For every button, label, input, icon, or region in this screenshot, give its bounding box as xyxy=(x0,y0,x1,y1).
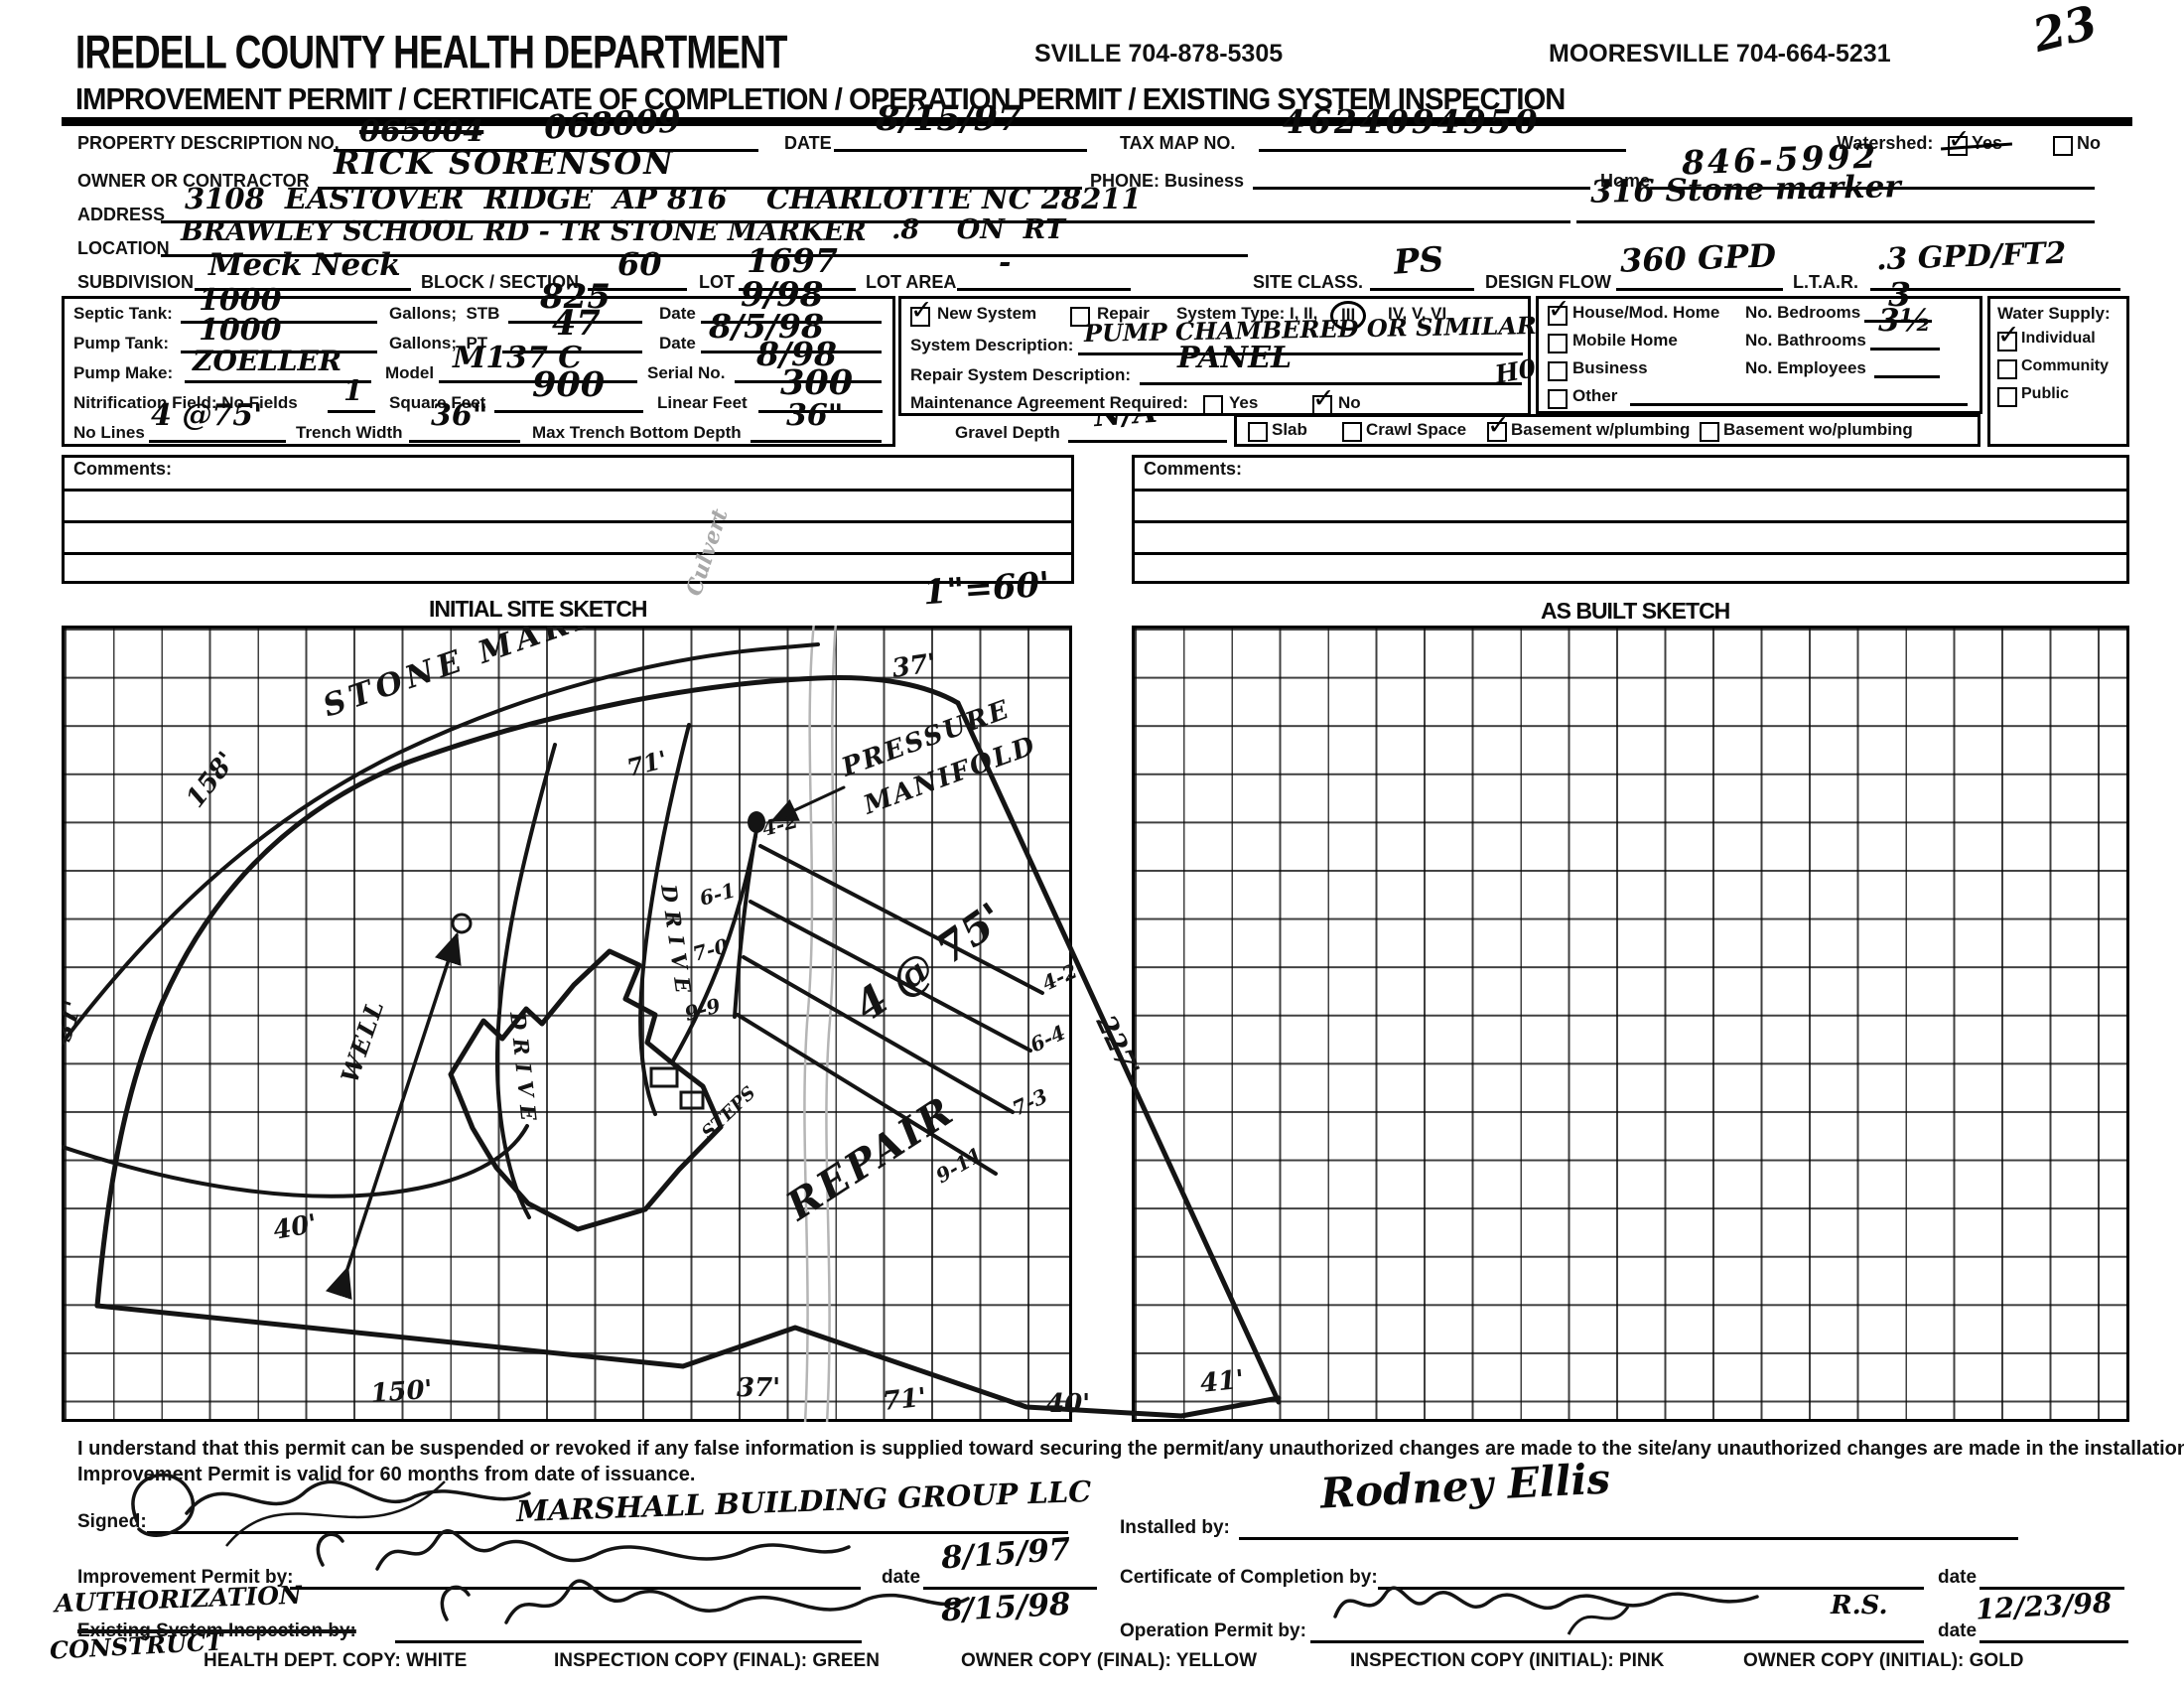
ruled-line xyxy=(65,552,1071,555)
pump-make-value: ZOELLER xyxy=(193,348,341,375)
scanned-permit-form: IREDELL COUNTY HEALTH DEPARTMENT SVILLE … xyxy=(0,0,2184,1689)
subdivision-value: Meck Neck xyxy=(208,250,401,281)
ruled-line xyxy=(1135,552,2126,555)
date-value: 8/15/97 xyxy=(876,101,1022,136)
employees-label: No. Employees xyxy=(1745,358,1866,378)
gallons-stb-label: Gallons; STB xyxy=(389,304,499,324)
community-label: Community xyxy=(2021,357,2109,375)
checkmark-icon: ✓ xyxy=(1548,296,1570,323)
site-class-label: SITE CLASS. xyxy=(1253,272,1363,293)
mobile-home-checkbox xyxy=(1548,334,1568,353)
slab-checkbox xyxy=(1248,422,1268,442)
ltar-value: .3 GPD/FT2 xyxy=(1876,239,2067,276)
lot-area-label: LOT AREA xyxy=(866,272,956,293)
owner-value: RICK SORENSON xyxy=(334,147,674,179)
location-value-2: .8 ON RT xyxy=(891,216,1065,243)
slab-label: Slab xyxy=(1272,420,1307,440)
address-label: ADDRESS xyxy=(77,205,165,225)
bathrooms-value: 3½ xyxy=(1878,306,1932,337)
watershed-no-label: No xyxy=(2077,133,2101,154)
comments-label-right: Comments: xyxy=(1144,459,1242,480)
ruled-line xyxy=(1135,520,2126,523)
copy-owner-final: OWNER COPY (FINAL): YELLOW xyxy=(961,1650,1257,1672)
construct-note: CONSTRUCT xyxy=(49,1629,223,1662)
septic-tank-value: 1000 xyxy=(199,286,282,316)
community-checkbox xyxy=(1997,359,2017,379)
checkmark-icon: ✓ xyxy=(1312,385,1335,412)
business-checkbox xyxy=(1548,361,1568,381)
crawl-space-label: Crawl Space xyxy=(1366,420,1466,440)
agency-title: IREDELL COUNTY HEALTH DEPARTMENT xyxy=(75,26,787,79)
crawl-space-checkbox xyxy=(1342,422,1362,442)
maintenance-yes-label: Yes xyxy=(1229,393,1258,413)
system-description-label: System Description: xyxy=(910,336,1073,355)
watershed-no-checkbox xyxy=(2053,136,2073,156)
operation-signature-suffix: R.S. xyxy=(1831,1593,1888,1619)
date1-label: Date xyxy=(659,304,696,324)
lot-label: LOT xyxy=(699,272,735,293)
trench-width-value: 36" xyxy=(431,401,487,431)
model-label: Model xyxy=(385,363,434,383)
max-depth-label: Max Trench Bottom Depth xyxy=(532,423,742,443)
maintenance-yes-checkbox xyxy=(1203,395,1223,415)
system-description-value: PUMP CHAMBERED OR SIMILAR xyxy=(1084,314,1537,346)
new-system-label: New System xyxy=(937,304,1036,324)
new-system-checkbox: ✓ xyxy=(910,307,930,327)
design-flow-value: 360 GPD xyxy=(1619,239,1776,276)
bathrooms-label: No. Bathrooms xyxy=(1745,331,1866,351)
fields-count-value: 1 xyxy=(343,377,362,405)
mooresville-phone: MOORESVILLE 704-664-5231 xyxy=(1549,40,1891,69)
date-label: date xyxy=(1938,1567,1977,1589)
as-built-sketch-grid xyxy=(1132,626,2129,1422)
ruled-line xyxy=(65,489,1071,492)
lot-area-value: - xyxy=(999,248,1011,278)
location-label: LOCATION xyxy=(77,238,170,259)
copy-health: HEALTH DEPT. COPY: WHITE xyxy=(204,1650,467,1672)
copy-owner-initial: OWNER COPY (INITIAL): GOLD xyxy=(1743,1650,2024,1672)
public-checkbox xyxy=(1997,387,2017,407)
design-flow-label: DESIGN FLOW xyxy=(1485,272,1611,293)
property-no-value: 068009 xyxy=(543,103,681,143)
subdivision-label: SUBDIVISION xyxy=(77,272,194,293)
date-line xyxy=(1979,1561,2124,1590)
repair-description-value: PANEL xyxy=(1177,344,1292,373)
page-number-scribble: 23 xyxy=(2028,0,2101,59)
linear-feet-label: Linear Feet xyxy=(657,393,748,413)
business-label: Business xyxy=(1572,358,1648,378)
sketch-scale-note: 1"=60' xyxy=(922,568,1051,611)
maintenance-no-checkbox: ✓ xyxy=(1312,395,1332,415)
initial-sketch-title: INITIAL SITE SKETCH xyxy=(429,596,647,623)
house-checkbox: ✓ xyxy=(1548,306,1568,326)
comments-box-left xyxy=(62,455,1074,584)
date-label: date xyxy=(1938,1620,1977,1642)
no-lines-value: 4 @75' xyxy=(151,401,262,431)
field-line xyxy=(957,262,1131,291)
installed-by-label: Installed by: xyxy=(1120,1517,1230,1539)
serial-label: Serial No. xyxy=(647,363,725,383)
bedrooms-label: No. Bedrooms xyxy=(1745,303,1860,323)
installed-by-value: Rodney Ellis xyxy=(1319,1458,1611,1514)
date-label: DATE xyxy=(784,133,832,154)
block-section-value: 60 xyxy=(617,248,662,280)
date2-label: Date xyxy=(659,334,696,353)
repair-description-label: Repair System Description: xyxy=(910,365,1131,385)
trench-width-label: Trench Width xyxy=(296,423,403,443)
initial-sketch-grid xyxy=(62,626,1072,1422)
house-label: House/Mod. Home xyxy=(1572,303,1719,323)
operation-permit-signature xyxy=(1320,1567,1797,1638)
tax-map-label: TAX MAP NO. xyxy=(1120,133,1235,154)
gravel-depth-label: Gravel Depth xyxy=(955,423,1060,443)
individual-checkbox: ✓ xyxy=(1997,332,2017,352)
field-line xyxy=(1253,161,1590,190)
ruled-line xyxy=(1135,489,2126,492)
maintenance-label: Maintenance Agreement Required: xyxy=(910,393,1188,413)
max-depth-value: 36" xyxy=(786,401,843,431)
address-value: 3108 EASTOVER RIDGE AP 816 xyxy=(185,185,728,213)
no-lines-label: No Lines xyxy=(73,423,145,443)
septic-tank-label: Septic Tank: xyxy=(73,304,173,324)
operation-date-value: 12/23/98 xyxy=(1975,1589,2113,1623)
square-feet-value: 900 xyxy=(532,367,605,402)
ruled-line xyxy=(65,520,1071,523)
basement-w-plumbing-checkbox: ✓ xyxy=(1487,422,1507,442)
statesville-phone: SVILLE 704-878-5305 xyxy=(1034,40,1283,69)
pump-make-label: Pump Make: xyxy=(73,363,173,383)
field-line xyxy=(1874,350,1940,378)
checkmark-icon: ✓ xyxy=(1487,412,1510,439)
checkmark-icon: ✓ xyxy=(910,297,933,324)
field-line xyxy=(1630,377,1968,406)
existing-date-value: 8/15/98 xyxy=(940,1590,1071,1627)
authorization-signature xyxy=(417,1565,973,1642)
tax-map-value: 4624094950 xyxy=(1283,105,1541,138)
lot-value: 1697 xyxy=(747,244,838,277)
mobile-home-label: Mobile Home xyxy=(1572,331,1678,351)
property-no-struck: 065004 xyxy=(359,117,483,147)
address-right-note: 316 Stone marker xyxy=(1590,172,1901,208)
address-city-value: CHARLOTTE NC 28211 xyxy=(766,185,1142,213)
comments-box-right xyxy=(1132,455,2129,584)
comments-label-left: Comments: xyxy=(73,459,172,480)
site-class-value: PS xyxy=(1393,242,1444,279)
pt-value: 47 xyxy=(552,306,601,341)
property-no-label: PROPERTY DESCRIPTION NO. xyxy=(77,133,340,154)
ltar-label: L.T.A.R. xyxy=(1793,272,1858,293)
basement-w-plumbing-label: Basement w/plumbing xyxy=(1511,420,1690,440)
other-label: Other xyxy=(1572,386,1617,406)
pump-tank-value: 1000 xyxy=(199,316,282,346)
operation-permit-by-label: Operation Permit by: xyxy=(1120,1620,1306,1642)
authorization-note: AUTHORIZATION xyxy=(55,1583,303,1617)
as-built-sketch-title: AS BUILT SKETCH xyxy=(1541,598,1729,625)
maintenance-no-label: No xyxy=(1338,393,1361,413)
copy-inspection-final: INSPECTION COPY (FINAL): GREEN xyxy=(554,1650,880,1672)
individual-label: Individual xyxy=(2021,330,2096,348)
copy-inspection-initial: INSPECTION COPY (INITIAL): PINK xyxy=(1350,1650,1664,1672)
pump-tank-label: Pump Tank: xyxy=(73,334,169,353)
other-checkbox xyxy=(1548,389,1568,409)
public-label: Public xyxy=(2021,385,2069,403)
linear-feet-value: 300 xyxy=(780,365,853,400)
basement-wo-plumbing-label: Basement wo/plumbing xyxy=(1723,420,1913,440)
basement-wo-plumbing-checkbox xyxy=(1700,422,1719,442)
checkmark-icon: ✓ xyxy=(1997,322,2020,349)
